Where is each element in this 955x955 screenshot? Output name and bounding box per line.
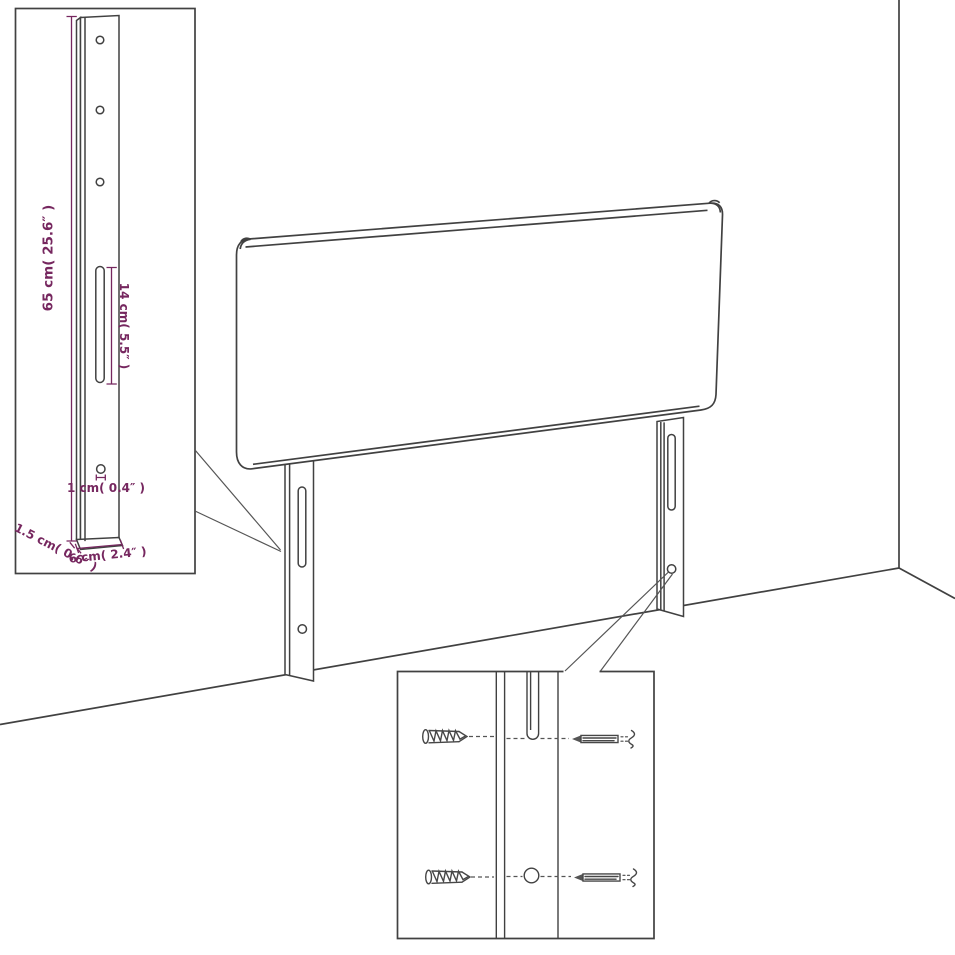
leg-side-view-drawing [77, 16, 123, 550]
leg-hole-middle [96, 106, 104, 114]
floor-line-right [899, 568, 955, 599]
dim-label-leg-height: 65 cm( 25.6″ ) [41, 205, 57, 312]
headboard-panel [237, 201, 723, 469]
leg-small-hole [97, 465, 105, 473]
left-leg [285, 452, 314, 681]
pointer-line-2 [195, 511, 281, 552]
mounting-detail-inset [398, 672, 655, 939]
right-leg-slot [668, 435, 675, 511]
leg-hole-top [96, 36, 104, 44]
leg-side-view-inset: 65 cm( 25.6″ ) 14 cm( 5.5″ ) 1 cm( 0.4″ … [12, 9, 195, 575]
right-leg [657, 418, 684, 617]
inset-fill [398, 672, 655, 939]
pointer-line-3 [565, 572, 669, 671]
diagram-canvas: 65 cm( 25.6″ ) 14 cm( 5.5″ ) 1 cm( 0.4″ … [0, 0, 955, 955]
pointer-line-4 [601, 574, 673, 671]
right-leg-hole [667, 565, 675, 573]
panel-outline [237, 203, 723, 469]
dim-label-hole-diameter: 1 cm( 0.4″ ) [67, 481, 145, 495]
leg-hole-bottom [96, 178, 104, 186]
left-leg-hole [298, 625, 306, 633]
left-leg-slot [298, 487, 306, 567]
leg-slot [96, 267, 104, 383]
dim-label-slot-length: 14 cm( 5.5″ ) [117, 283, 131, 369]
headboard-dimension-diagram: 65 cm( 25.6″ ) 14 cm( 5.5″ ) 1 cm( 0.4″ … [0, 0, 955, 955]
